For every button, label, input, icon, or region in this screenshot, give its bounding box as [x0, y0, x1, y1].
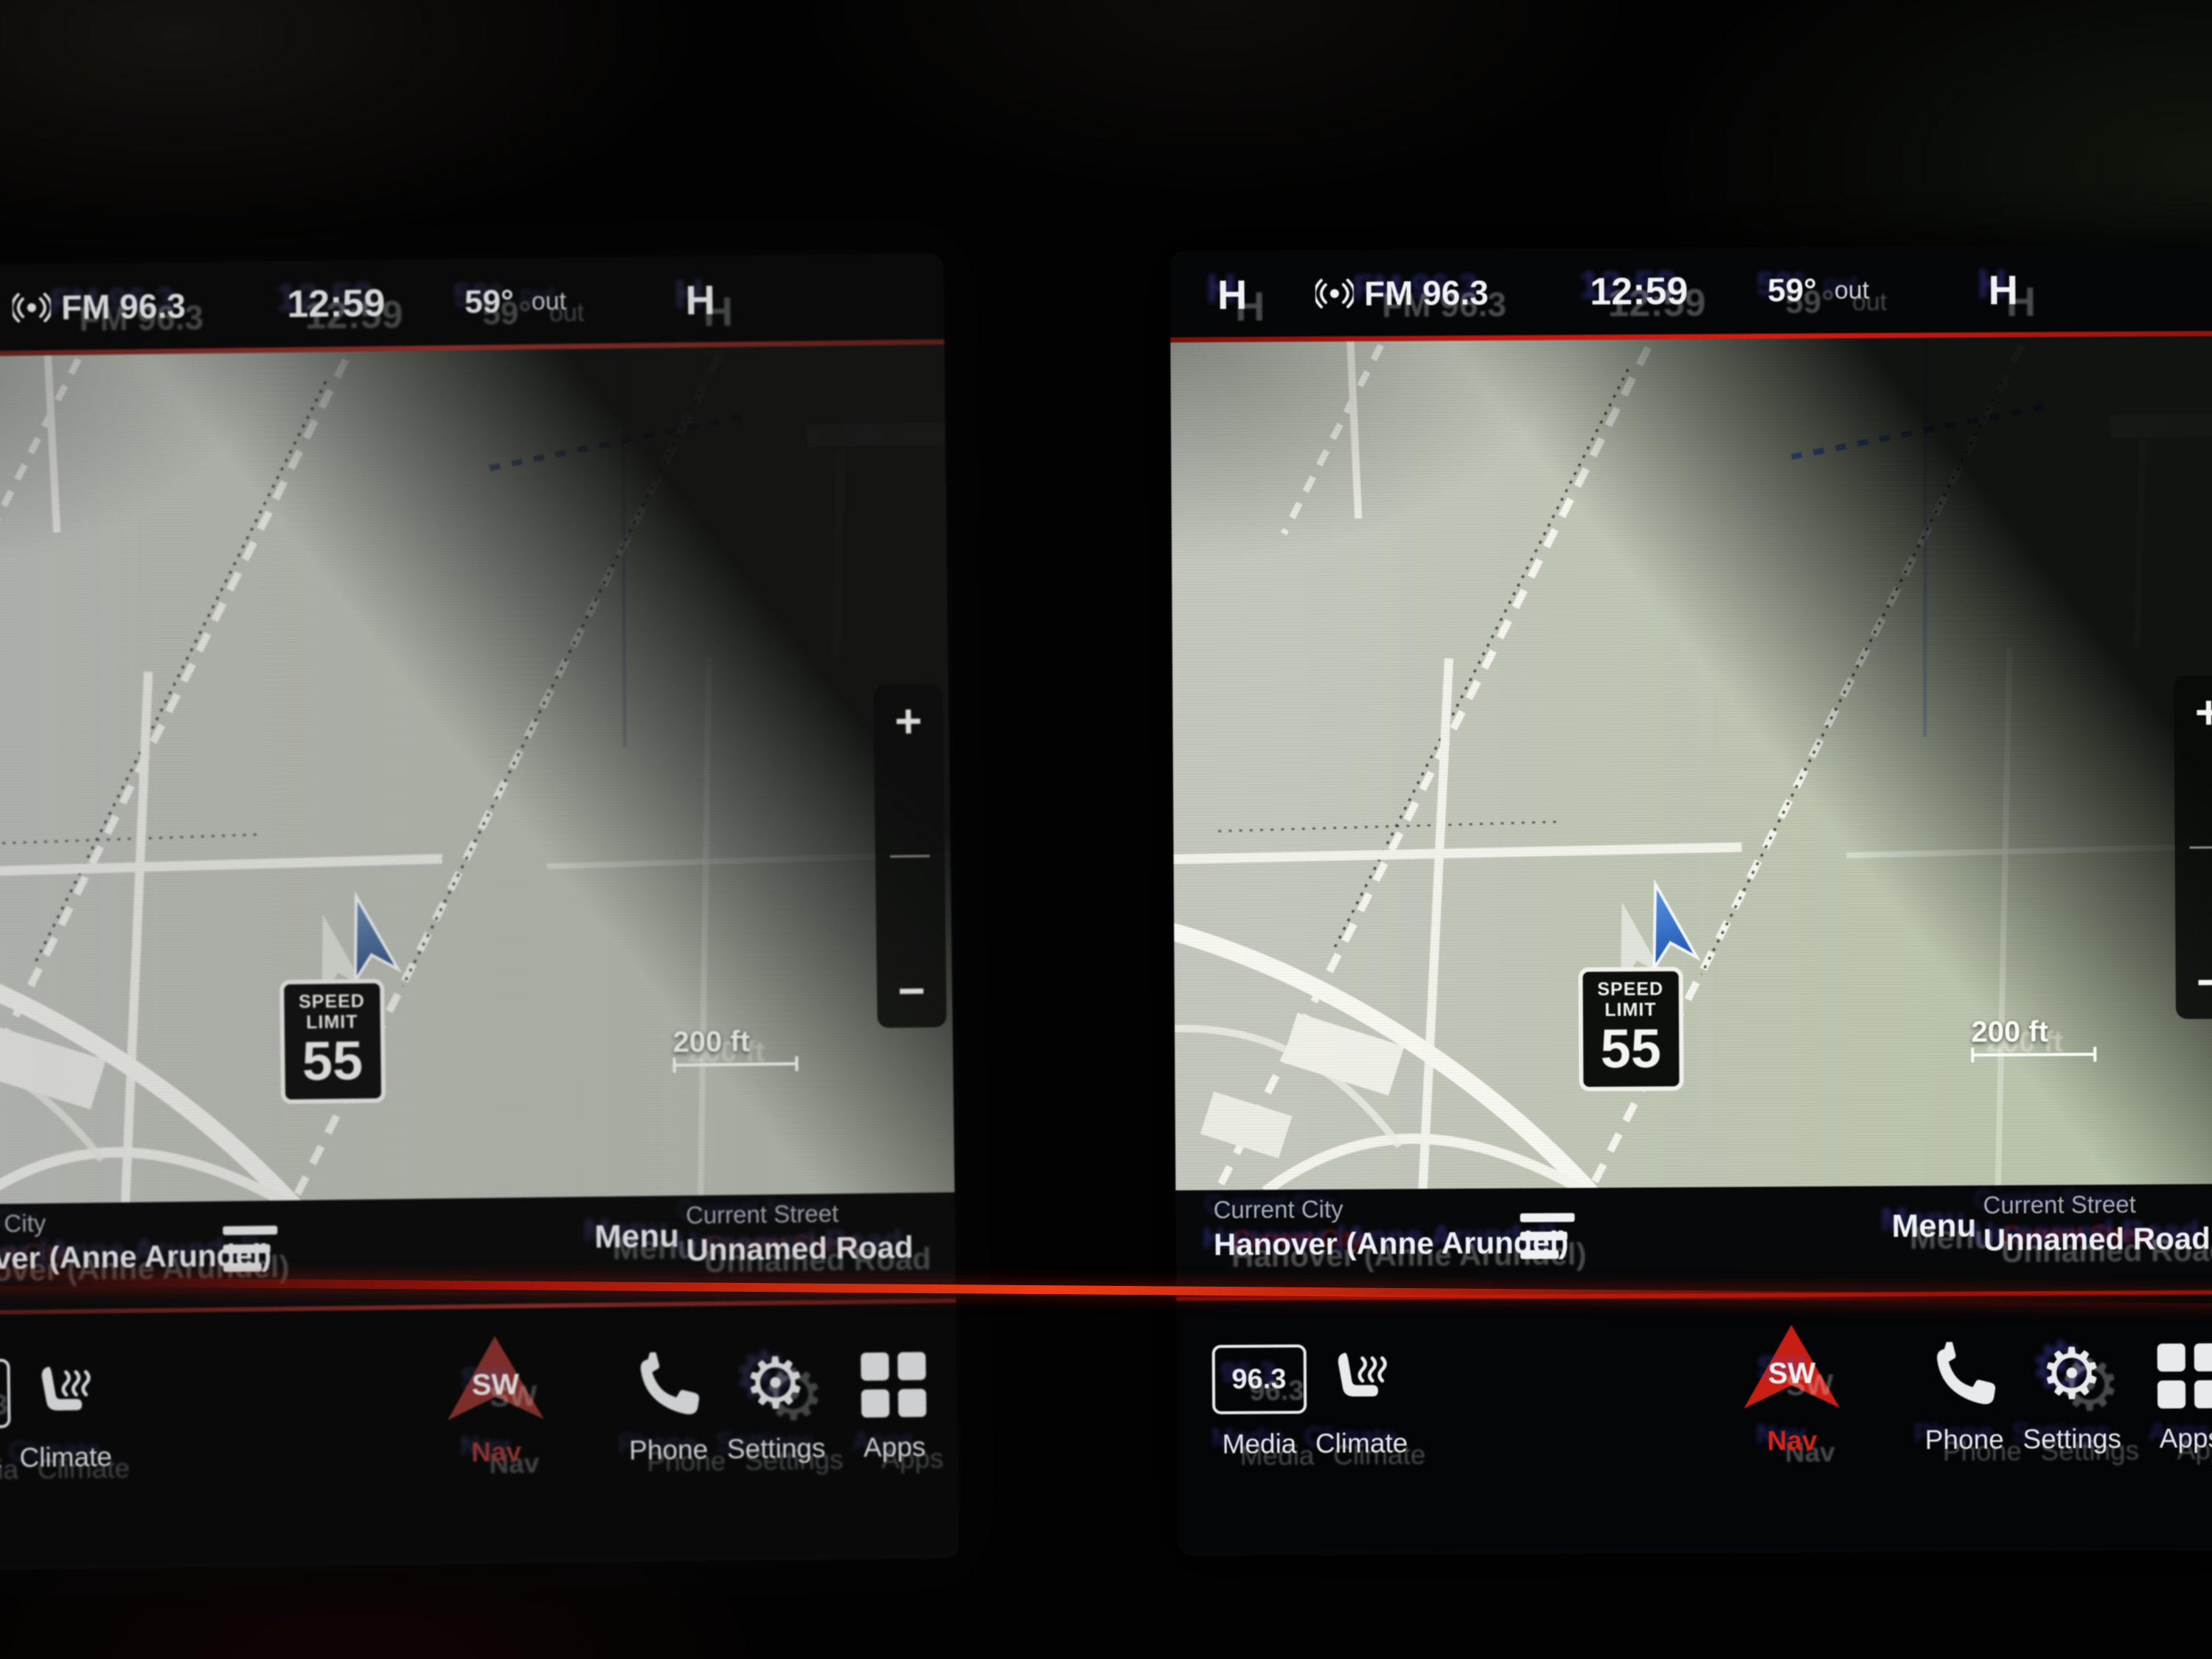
radio-broadcast-icon [13, 288, 52, 327]
map-roads-layer [1170, 336, 2212, 1191]
speed-limit-value: 55 [288, 1032, 376, 1091]
menu-item-icon-text: SW [1768, 1357, 1816, 1390]
gear-icon: ⚙ [743, 1330, 808, 1419]
status-bar: H FM 96.3 12:59 59° out H [0, 253, 945, 353]
radio-broadcast-icon [1315, 274, 1354, 313]
menu-item-label: Apps [2160, 1423, 2212, 1455]
current-street-block: Current Street Unnamed Road [686, 1199, 914, 1268]
menu-item-label: Phone [1925, 1425, 2004, 1456]
menu-item-label: Apps [863, 1432, 926, 1464]
nav-map-canvas[interactable]: SPEED LIMIT 55 200 ft + − [0, 344, 955, 1206]
menu-item-label: Settings [2023, 1424, 2121, 1455]
phone-icon [633, 1331, 702, 1420]
status-bar: H FM 96.3 12:59 59° out H [1170, 245, 2212, 338]
temp-value: 59° [1767, 272, 1817, 309]
menu-item-climate[interactable]: Climate [1306, 1324, 1417, 1459]
temp-unit: out [532, 287, 567, 316]
menu-item-nav[interactable]: SWNav [1736, 1322, 1848, 1457]
map-scale-label: 200 ft [1971, 1015, 2096, 1049]
speed-limit-title: SPEED LIMIT [288, 991, 376, 1033]
current-city-label: Current City [1214, 1194, 1569, 1224]
outside-temperature: 59° out [464, 257, 566, 346]
location-info-bar: Current City Hanover (Anne Arundel) Menu… [0, 1192, 956, 1316]
map-scale-label: 200 ft [672, 1025, 799, 1060]
apps-grid-icon [860, 1329, 926, 1418]
current-city-block: Current City Hanover (Anne Arundel) [1214, 1194, 1569, 1262]
map-zoom-control: + − [2174, 675, 2212, 1020]
zoom-in-button[interactable]: + [2174, 689, 2212, 737]
menu-item-phone[interactable]: Phone [1908, 1321, 2020, 1455]
menu-item-climate[interactable]: Climate [9, 1338, 121, 1474]
time-label: 12:59 [287, 281, 386, 327]
temp-value: 59° [465, 283, 514, 321]
nav-menu-button[interactable]: Menu [594, 1218, 679, 1256]
right-seat-heat-indicator: H [685, 256, 717, 344]
map-zoom-control: + − [873, 684, 947, 1028]
map-options-hamburger-icon[interactable] [223, 1225, 278, 1272]
menu-item-settings[interactable]: ⚙Settings [720, 1329, 832, 1465]
map-options-hamburger-icon[interactable] [1520, 1213, 1575, 1259]
current-street-value: Unnamed Road [686, 1230, 914, 1268]
left-seat-heat-indicator: H [1217, 251, 1249, 338]
zoom-divider [2189, 846, 2212, 848]
menu-item-apps[interactable]: Apps [2135, 1320, 2212, 1455]
menu-item-label: Media [0, 1443, 1, 1475]
nav-compass-arrow-icon: SW [439, 1333, 551, 1423]
station-label: FM 96.3 [1364, 273, 1489, 313]
zoom-divider [890, 855, 931, 858]
speed-limit-sign: SPEED LIMIT 55 [279, 978, 386, 1103]
heated-seat-icon [1327, 1325, 1396, 1414]
current-street-label: Current Street [686, 1199, 913, 1230]
map-scale: 200 ft [1971, 1015, 2096, 1057]
right-seat-heat-indicator: H [1988, 246, 2020, 333]
outside-temperature: 59° out [1767, 247, 1870, 335]
current-street-value: Unnamed Road [1983, 1221, 2211, 1258]
clock: 12:59 [1590, 248, 1688, 335]
nav-menu-button[interactable]: Menu [1891, 1208, 1976, 1245]
heated-seat-h-badge: H [685, 275, 717, 324]
app-menu-bar: 96.3MediaClimateSWNavPhone⚙SettingsApps [1176, 1295, 2212, 1552]
infotainment-screen: H FM 96.3 12:59 59° out H [1170, 245, 2212, 1557]
map-roads-layer [0, 344, 955, 1206]
menu-item-icon-text: 96.3 [1231, 1363, 1286, 1395]
menu-item-apps[interactable]: Apps [838, 1328, 950, 1464]
speed-limit-sign: SPEED LIMIT 55 [1578, 967, 1683, 1091]
radio-station-icon: 96.3 [1211, 1325, 1307, 1414]
zoom-out-button[interactable]: − [877, 967, 947, 1015]
nav-compass-arrow-icon: SW [1736, 1322, 1848, 1411]
speed-limit-title: SPEED LIMIT [1587, 978, 1674, 1020]
menu-item-label: Media [1222, 1428, 1296, 1460]
apps-grid-icon [2157, 1320, 2212, 1409]
current-city-value: Hanover (Anne Arundel) [1214, 1225, 1569, 1262]
phone-icon [1930, 1321, 1998, 1411]
map-scale: 200 ft [672, 1025, 799, 1067]
menu-item-nav[interactable]: SWNav [439, 1333, 552, 1469]
current-street-label: Current Street [1983, 1190, 2210, 1220]
speed-limit-value: 55 [1587, 1020, 1674, 1077]
station-label: FM 96.3 [61, 286, 186, 327]
zoom-in-button[interactable]: + [873, 697, 943, 745]
clock: 12:59 [287, 260, 386, 348]
radio-station-status: FM 96.3 [1315, 249, 1489, 337]
heated-seat-h-badge: H [1988, 265, 2020, 313]
infotainment-screen: H FM 96.3 12:59 59° out H [0, 253, 959, 1571]
heated-seat-h-badge: H [1217, 270, 1249, 318]
heated-seat-icon [30, 1338, 99, 1427]
menu-item-phone[interactable]: Phone [612, 1331, 724, 1467]
menu-item-label: Settings [727, 1433, 826, 1465]
menu-item-label: Nav [1767, 1425, 1818, 1456]
menu-item-label: Nav [471, 1436, 521, 1468]
menu-item-label: Climate [1315, 1428, 1408, 1460]
current-street-block: Current Street Unnamed Road [1983, 1190, 2211, 1258]
gear-icon: ⚙ [2039, 1321, 2104, 1410]
zoom-out-button[interactable]: − [2175, 959, 2212, 1006]
temp-unit: out [1834, 276, 1870, 305]
location-info-bar: Current City Hanover (Anne Arundel) Menu… [1175, 1184, 2212, 1301]
radio-station-status: FM 96.3 [12, 262, 186, 352]
menu-item-settings[interactable]: ⚙Settings [2016, 1321, 2127, 1455]
menu-item-media[interactable]: 96.3Media [1203, 1325, 1315, 1460]
menu-item-icon-text: SW [472, 1368, 520, 1402]
time-label: 12:59 [1590, 269, 1688, 314]
app-menu-bar: 96.3MediaClimateSWNavPhone⚙SettingsApps [0, 1303, 959, 1567]
menu-item-label: Climate [19, 1441, 112, 1474]
nav-map-canvas[interactable]: SPEED LIMIT 55 200 ft + − [1170, 336, 2212, 1191]
menu-item-label: Phone [629, 1434, 709, 1466]
